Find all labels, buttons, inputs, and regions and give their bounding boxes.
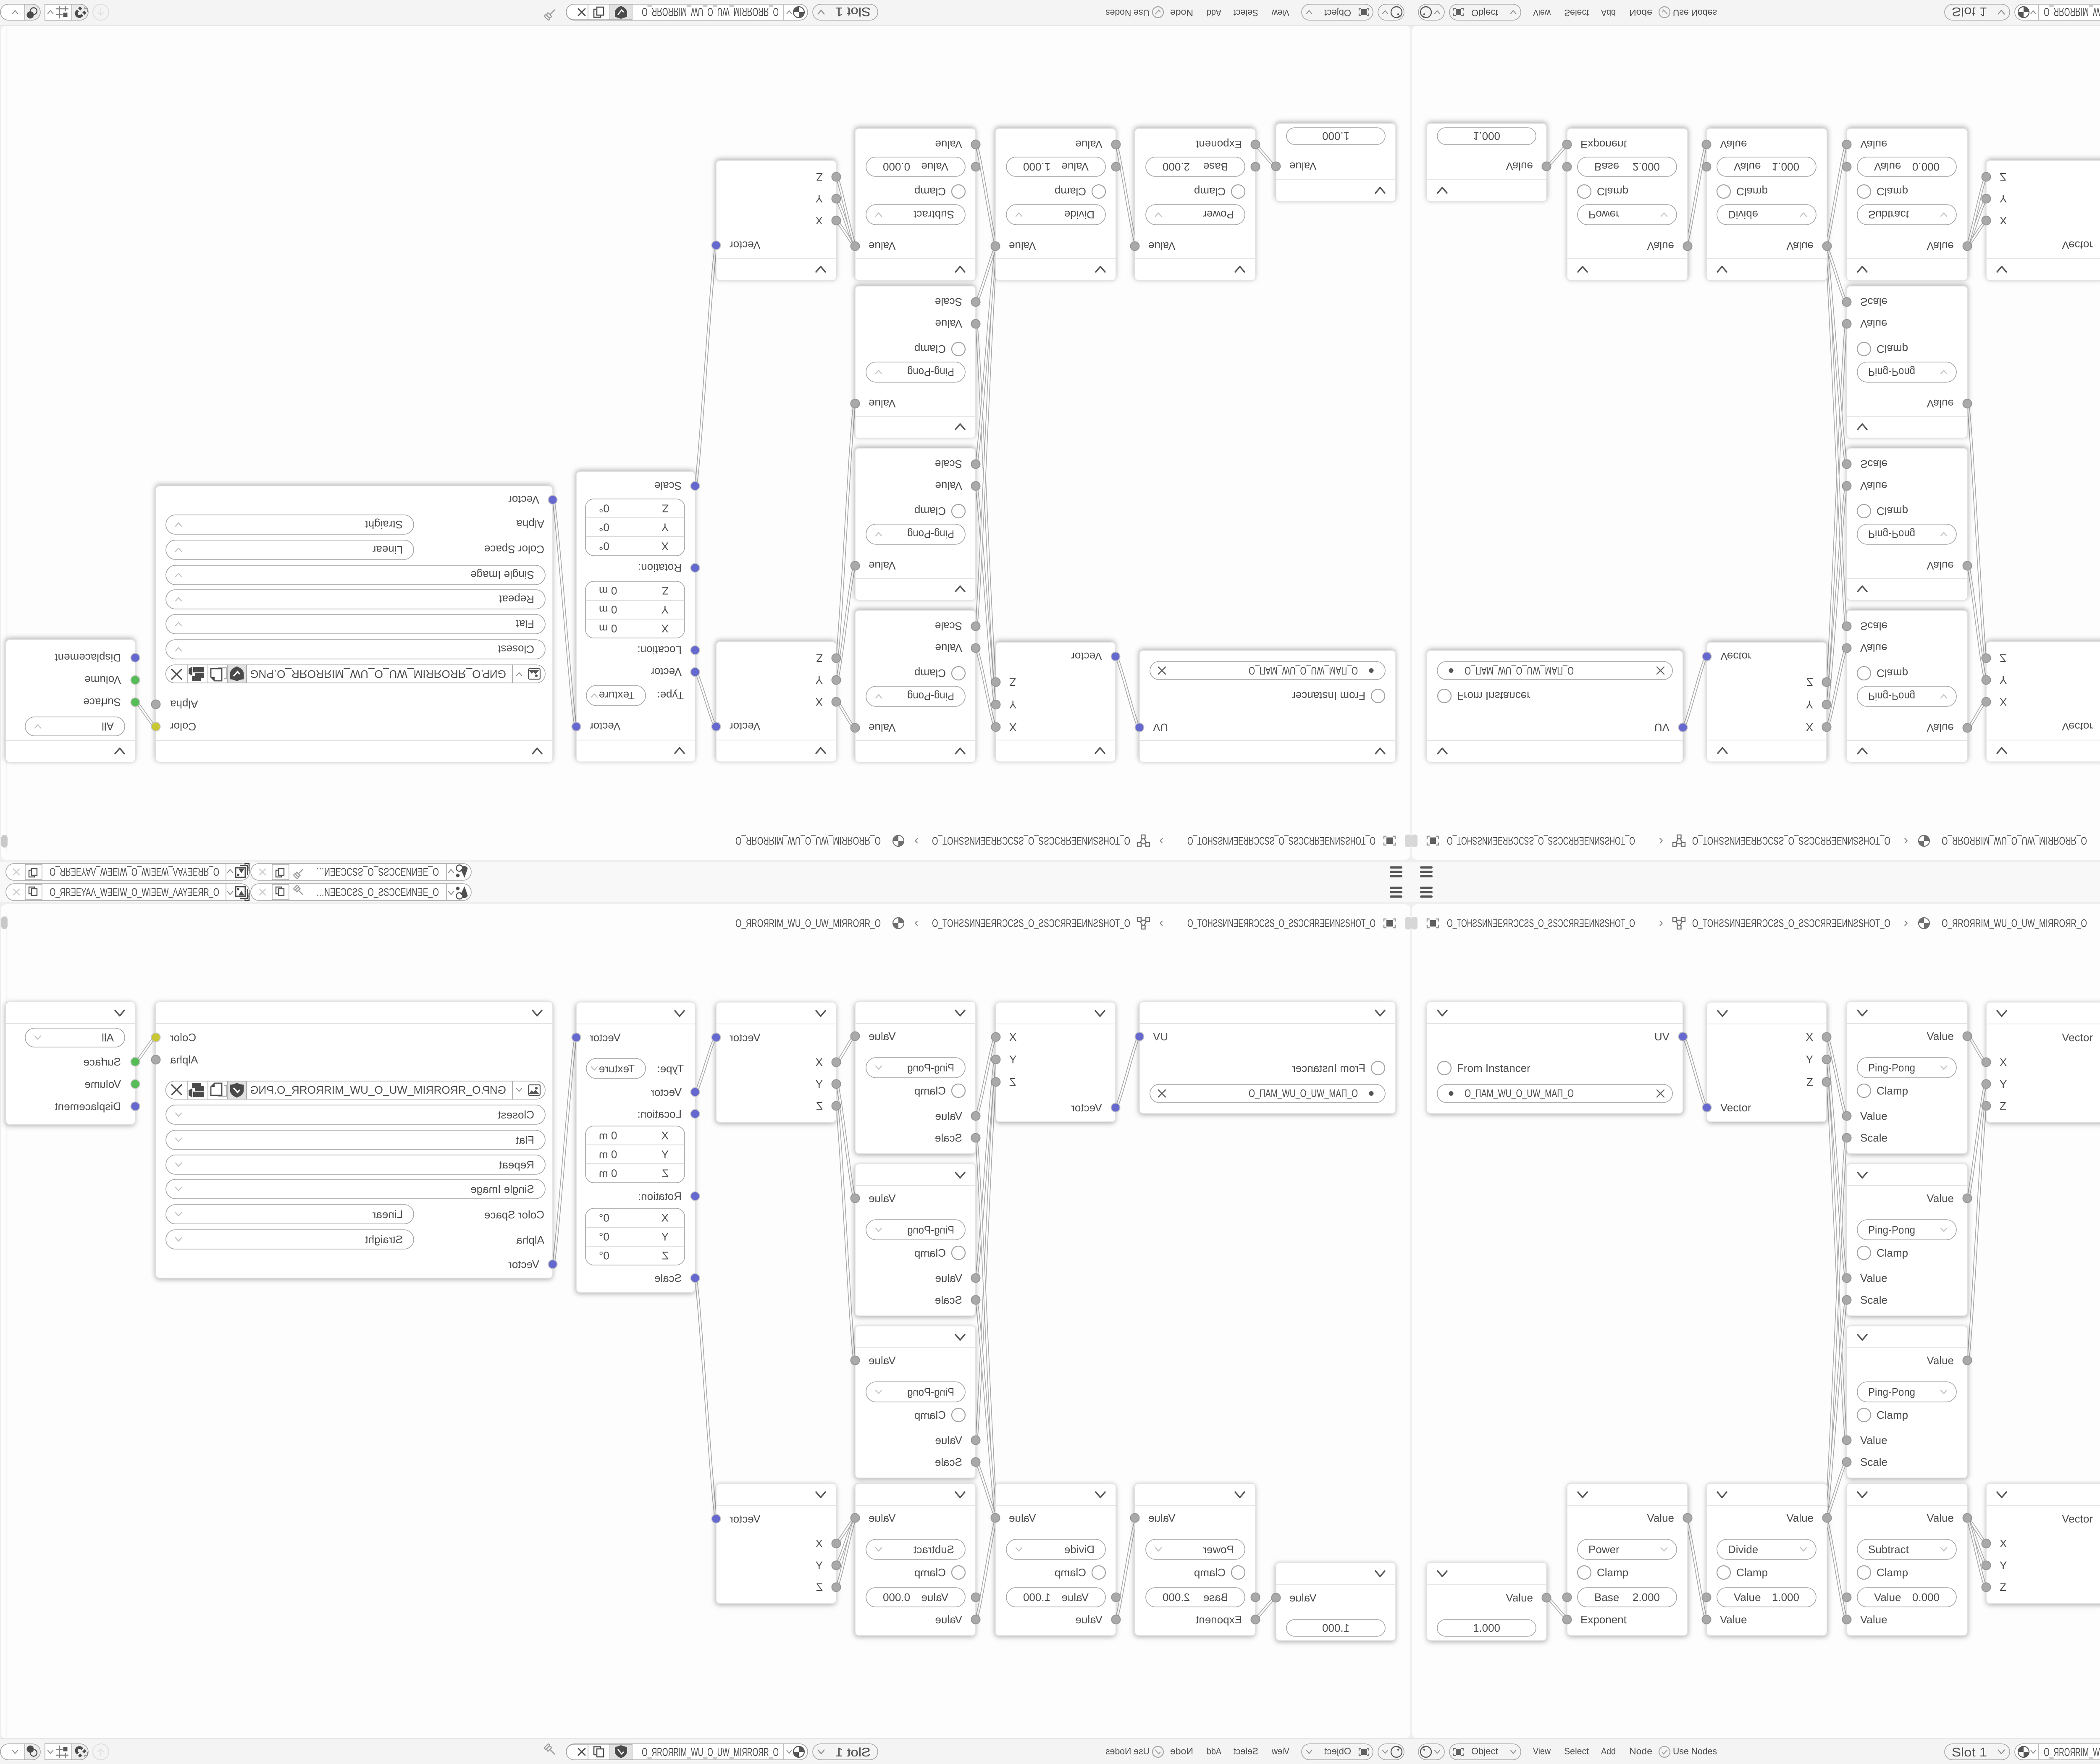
svg-text:Value: Value: [1874, 1591, 1901, 1604]
svg-text:Y: Y: [2000, 1559, 2007, 1572]
svg-text:From Instancer: From Instancer: [1457, 1062, 1530, 1074]
svg-text:Scale: Scale: [1860, 1294, 1887, 1306]
svg-text:Value: Value: [1734, 1591, 1761, 1604]
svg-text:Add: Add: [1601, 1746, 1616, 1756]
svg-text:Vector: Vector: [2062, 1512, 2093, 1525]
svg-text:Value: Value: [1506, 1591, 1533, 1604]
svg-text:Subtract: Subtract: [1868, 1543, 1909, 1556]
svg-text:Base: Base: [1594, 1591, 1619, 1604]
svg-text:Power: Power: [1588, 1543, 1620, 1556]
svg-text:Clamp: Clamp: [1736, 1566, 1768, 1579]
svg-text:Object: Object: [1471, 1746, 1498, 1756]
svg-text:Clamp: Clamp: [1877, 1409, 1908, 1421]
svg-text:Value: Value: [1860, 1434, 1887, 1446]
svg-text:Node: Node: [1629, 1746, 1652, 1756]
svg-text:Scale: Scale: [1860, 1456, 1887, 1468]
svg-text:Value: Value: [1647, 1512, 1674, 1524]
svg-text:Slot 1: Slot 1: [1952, 1746, 1987, 1759]
svg-text:X: X: [2000, 1537, 2007, 1550]
svg-text:Y: Y: [1806, 1053, 1813, 1066]
svg-text:X: X: [1806, 1031, 1813, 1043]
svg-text:Clamp: Clamp: [1877, 1247, 1908, 1259]
svg-text:Value: Value: [1860, 1272, 1887, 1284]
svg-text:Y: Y: [2000, 1078, 2007, 1090]
svg-text:Exponent: Exponent: [1580, 1613, 1627, 1626]
svg-text:UV: UV: [1654, 1030, 1670, 1043]
svg-text:X: X: [2000, 1056, 2007, 1068]
svg-text:Vector: Vector: [1720, 1101, 1751, 1114]
svg-text:Vector: Vector: [2062, 1031, 2093, 1044]
svg-text:Divide: Divide: [1728, 1543, 1758, 1556]
svg-text:›: ›: [1659, 916, 1663, 929]
svg-text:Scale: Scale: [1860, 1131, 1887, 1144]
svg-text:O_TOHƧSИNƎEЯRƆCƧS_O_ƧSƆCЯRƎEИN: O_TOHƧSИNƎEЯRƆCƧS_O_ƧSƆCЯRƎEИNƧSHOT_O: [1692, 917, 1890, 929]
svg-text:O_TOHƧSИNƎEЯRƆCƧS_O_ƧSƆCЯRƎEИN: O_TOHƧSИNƎEЯRƆCƧS_O_ƧSƆCЯRƎEИNƧSHOT_O: [1447, 917, 1635, 929]
svg-text:Value: Value: [1927, 1512, 1954, 1524]
svg-text:O_ПAM_WU_O_UW_MAП_O: O_ПAM_WU_O_UW_MAП_O: [1465, 1087, 1574, 1100]
svg-text:Value: Value: [1860, 1613, 1887, 1626]
svg-text:Clamp: Clamp: [1877, 1084, 1908, 1097]
svg-text:Ping-Pong: Ping-Pong: [1868, 1223, 1915, 1236]
svg-text:Z: Z: [2000, 1581, 2006, 1593]
svg-text:Value: Value: [1720, 1613, 1747, 1626]
svg-text:O_ЯROЯRIM_WU_O_UW_MIЯROЯR_O: O_ЯROЯRIM_WU_O_UW_MIЯROЯR_O: [2044, 1746, 2100, 1759]
svg-text:Z: Z: [2000, 1100, 2006, 1112]
svg-text:2.000: 2.000: [1633, 1591, 1660, 1604]
svg-text:Use Nodes: Use Nodes: [1673, 1746, 1717, 1756]
svg-text:Ping-Pong: Ping-Pong: [1868, 1061, 1915, 1074]
svg-text:Clamp: Clamp: [1877, 1566, 1908, 1579]
svg-text:Value: Value: [1927, 1354, 1954, 1367]
svg-text:1.000: 1.000: [1772, 1591, 1799, 1604]
svg-text:Value: Value: [1786, 1512, 1814, 1524]
svg-text:1.000: 1.000: [1473, 1622, 1500, 1634]
svg-text:Ping-Pong: Ping-Pong: [1868, 1386, 1915, 1398]
svg-text:Value: Value: [1927, 1192, 1954, 1205]
svg-text:0.000: 0.000: [1912, 1591, 1940, 1604]
svg-text:View: View: [1533, 1746, 1551, 1756]
svg-text:›: ›: [1904, 916, 1908, 929]
svg-text:O_ЯROЯRIM_WU_O_UW_MIЯROЯR_O: O_ЯROЯRIM_WU_O_UW_MIЯROЯR_O: [1942, 917, 2087, 929]
svg-text:Clamp: Clamp: [1597, 1566, 1628, 1579]
svg-text:Z: Z: [1806, 1076, 1813, 1088]
svg-text:Select: Select: [1564, 1746, 1589, 1756]
svg-text:Value: Value: [1927, 1030, 1954, 1042]
svg-text:Value: Value: [1860, 1110, 1887, 1122]
